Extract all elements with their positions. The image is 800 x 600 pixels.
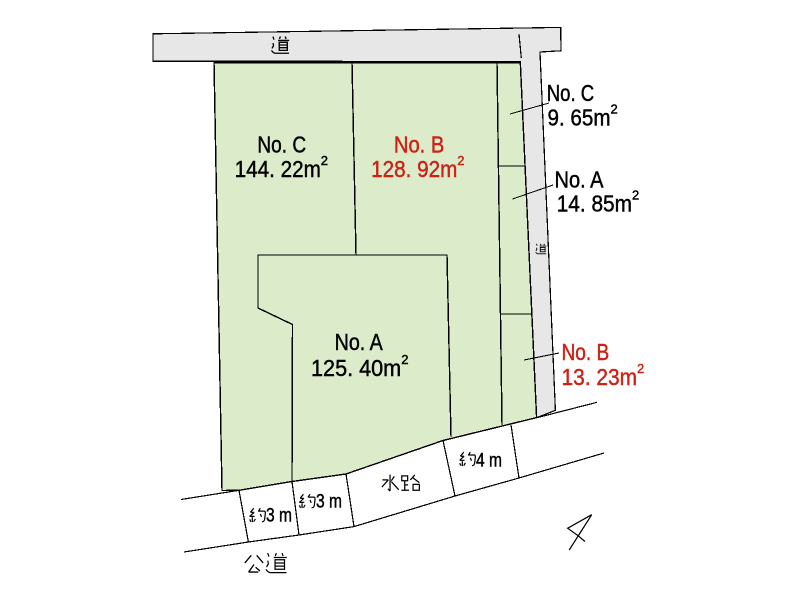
svg-text:No. A: No. A — [335, 329, 383, 355]
svg-text:3 m: 3 m — [316, 492, 342, 513]
svg-text:2: 2 — [637, 361, 644, 376]
svg-text:9. 65m: 9. 65m — [548, 105, 611, 131]
svg-text:13. 23m: 13. 23m — [562, 364, 638, 390]
svg-text:2: 2 — [457, 153, 464, 168]
svg-text:2: 2 — [611, 102, 618, 117]
svg-text:No. B: No. B — [562, 339, 610, 365]
svg-text:2: 2 — [321, 153, 328, 168]
svg-text:No. C: No. C — [257, 132, 306, 158]
svg-text:14. 85m: 14. 85m — [557, 191, 632, 217]
svg-text:2: 2 — [632, 188, 639, 203]
svg-text:4 m: 4 m — [476, 451, 502, 472]
svg-text:128. 92m: 128. 92m — [371, 156, 457, 182]
svg-text:2: 2 — [401, 352, 408, 367]
svg-text:125. 40m: 125. 40m — [311, 355, 401, 381]
svg-text:No. B: No. B — [394, 132, 444, 158]
svg-text:144. 22m: 144. 22m — [235, 156, 321, 182]
svg-text:No. C: No. C — [547, 80, 594, 106]
svg-text:No. A: No. A — [555, 167, 604, 193]
svg-text:3 m: 3 m — [266, 506, 292, 527]
